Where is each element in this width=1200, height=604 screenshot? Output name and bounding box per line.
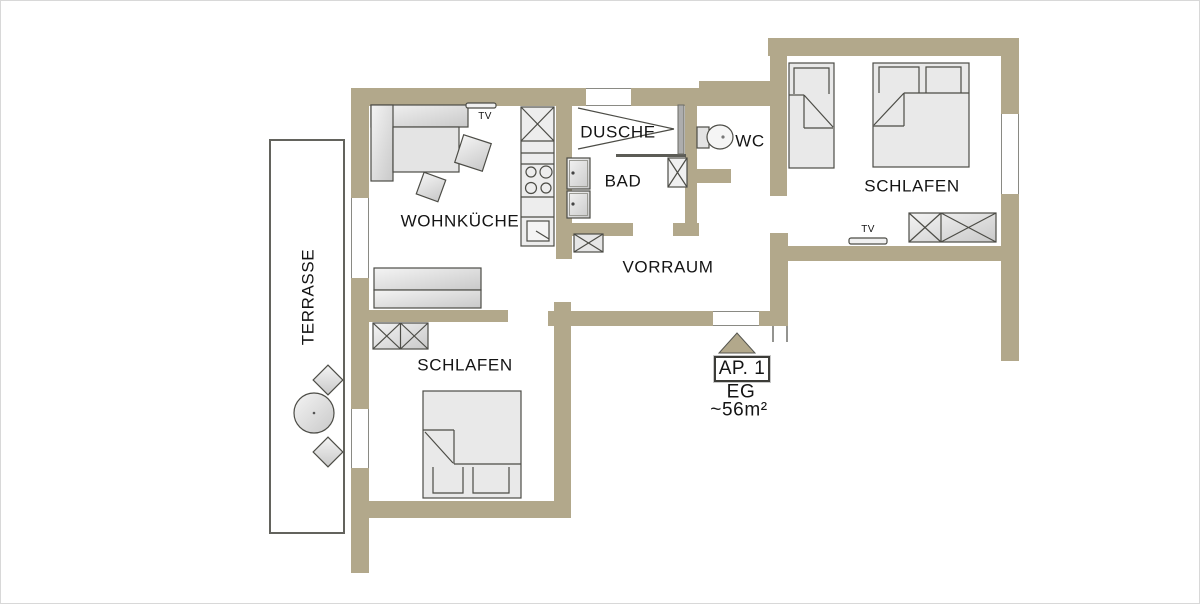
room-label-shower: DUSCHE — [580, 124, 655, 141]
wardrobe — [909, 213, 996, 242]
tv-label: TV — [861, 225, 874, 235]
sideboard — [374, 268, 481, 308]
kitchen-unit — [521, 107, 554, 246]
double-bed — [873, 63, 969, 167]
shower-glass — [678, 105, 684, 154]
double-bed — [423, 391, 521, 498]
corner-sofa — [371, 105, 468, 181]
furniture-layer — [1, 1, 1200, 604]
terrace-chair — [313, 365, 343, 395]
room-label-hall: VORRAUM — [622, 259, 713, 276]
room-label-bedroom-right: SCHLAFEN — [864, 178, 960, 195]
room-label-terrace: TERRASSE — [300, 249, 317, 345]
shaft-box — [574, 234, 603, 252]
bath-sink — [567, 158, 590, 218]
terrace-chair — [313, 437, 343, 467]
room-label-wc: WC — [735, 133, 765, 150]
apartment-id: AP. 1 — [719, 358, 766, 380]
room-label-bath: BAD — [605, 173, 642, 190]
chair — [416, 172, 445, 201]
terrace-table — [294, 393, 334, 433]
single-bed — [789, 63, 834, 168]
floor-plan: WOHNKÜCHE DUSCHE BAD WC VORRAUM SCHLAFEN… — [0, 0, 1200, 604]
room-label-living-kitchen: WOHNKÜCHE — [401, 213, 520, 230]
entrance-arrow — [719, 333, 755, 353]
shaft-box — [668, 158, 687, 187]
tv-label: TV — [478, 112, 491, 122]
wardrobe — [373, 323, 428, 349]
area-label: ~56m² — [710, 401, 767, 420]
tv-icon — [466, 103, 496, 108]
toilet — [697, 125, 733, 149]
room-label-bedroom-left: SCHLAFEN — [417, 357, 513, 374]
table — [455, 135, 492, 172]
tv-icon — [849, 238, 887, 244]
apartment-id-box: AP. 1 — [714, 356, 770, 382]
